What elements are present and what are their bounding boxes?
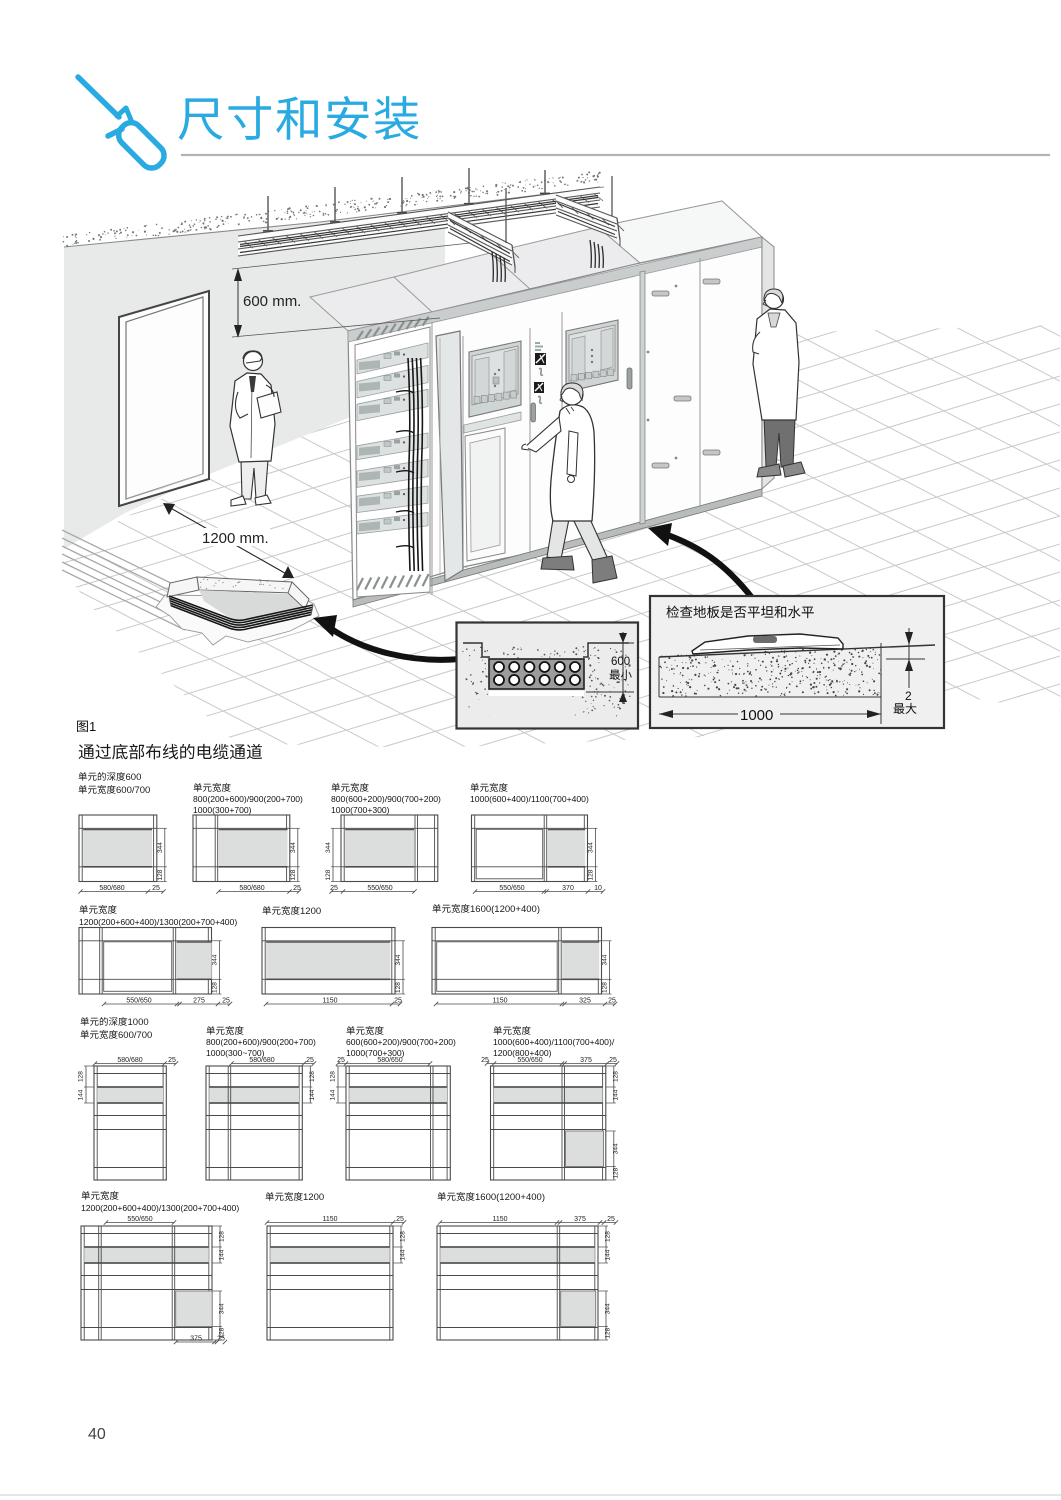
svg-text:1600(1200+400): 1600(1200+400)	[470, 904, 540, 915]
svg-text:128: 128	[588, 869, 595, 880]
svg-text:144: 144	[330, 1089, 337, 1100]
svg-text:375: 375	[574, 1216, 586, 1223]
svg-text:344: 344	[290, 842, 297, 853]
svg-text:1150: 1150	[492, 998, 507, 1005]
svg-text:1200: 1200	[300, 906, 321, 917]
svg-text:128: 128	[612, 1167, 619, 1178]
svg-text:1000: 1000	[740, 707, 773, 724]
svg-text:1000: 1000	[128, 1017, 149, 1028]
svg-text:580/680: 580/680	[239, 885, 264, 892]
svg-text:25: 25	[609, 1057, 617, 1064]
svg-text:144: 144	[309, 1089, 316, 1100]
svg-text:128: 128	[330, 1071, 337, 1082]
svg-text:344: 344	[219, 1303, 226, 1314]
svg-text:128: 128	[612, 1071, 619, 1082]
svg-text:144: 144	[78, 1089, 85, 1100]
svg-text:1000(700+300): 1000(700+300)	[331, 805, 390, 815]
svg-text:375: 375	[190, 1336, 202, 1343]
svg-text:25: 25	[152, 885, 160, 892]
svg-text:370: 370	[562, 885, 574, 892]
svg-text:375: 375	[580, 1057, 592, 1064]
svg-text:25: 25	[222, 998, 230, 1005]
svg-text:25: 25	[168, 1057, 176, 1064]
svg-text:10: 10	[594, 885, 602, 892]
svg-text:25: 25	[396, 1216, 404, 1223]
svg-text:600/700: 600/700	[118, 1030, 152, 1041]
svg-text:128: 128	[78, 1071, 85, 1082]
svg-text:344: 344	[395, 954, 402, 965]
svg-text:25: 25	[306, 1057, 314, 1064]
svg-text:275: 275	[193, 998, 205, 1005]
svg-text:1600(1200+400): 1600(1200+400)	[475, 1192, 545, 1203]
svg-text:580/650: 580/650	[377, 1057, 402, 1064]
svg-text:600/700: 600/700	[116, 785, 150, 796]
svg-text:144: 144	[605, 1249, 612, 1260]
svg-text:600(600+200)/900(700+200): 600(600+200)/900(700+200)	[346, 1037, 456, 1047]
svg-text:1150: 1150	[322, 998, 337, 1005]
svg-text:550/650: 550/650	[367, 885, 392, 892]
svg-text:1150: 1150	[322, 1216, 337, 1223]
svg-text:344: 344	[588, 842, 595, 853]
svg-text:344: 344	[612, 1143, 619, 1154]
svg-text:25: 25	[607, 1216, 615, 1223]
svg-text:25: 25	[217, 1336, 225, 1343]
svg-text:128: 128	[309, 1071, 316, 1082]
svg-text:1000(300+700): 1000(300+700)	[193, 805, 252, 815]
svg-text:1200(200+600+400)/1300(200+700: 1200(200+600+400)/1300(200+700+400)	[81, 1203, 239, 1213]
svg-text:128: 128	[325, 869, 332, 880]
svg-text:550/650: 550/650	[517, 1057, 542, 1064]
svg-text:2: 2	[905, 689, 912, 703]
svg-text:128: 128	[157, 869, 164, 880]
svg-text:550/650: 550/650	[127, 1216, 152, 1223]
svg-text:25: 25	[608, 998, 616, 1005]
svg-text:600: 600	[611, 656, 630, 668]
svg-text:128: 128	[395, 982, 402, 993]
svg-text:550/650: 550/650	[499, 885, 524, 892]
svg-text:580/680: 580/680	[117, 1057, 142, 1064]
svg-text:1: 1	[89, 719, 96, 734]
svg-text:40: 40	[88, 1426, 106, 1443]
svg-text:600: 600	[126, 772, 142, 783]
svg-text:344: 344	[325, 842, 332, 853]
svg-text:128: 128	[602, 982, 609, 993]
svg-text:1200 mm.: 1200 mm.	[202, 530, 269, 547]
svg-text:25: 25	[330, 885, 338, 892]
svg-text:1200: 1200	[303, 1192, 324, 1203]
svg-text:128: 128	[605, 1231, 612, 1242]
svg-text:550/650: 550/650	[126, 998, 151, 1005]
svg-text:580/680: 580/680	[249, 1057, 274, 1064]
svg-text:800(200+600)/900(200+700): 800(200+600)/900(200+700)	[206, 1037, 316, 1047]
svg-text:344: 344	[605, 1303, 612, 1314]
svg-text:128: 128	[605, 1327, 612, 1338]
svg-text:128: 128	[219, 1231, 226, 1242]
svg-text:344: 344	[602, 954, 609, 965]
svg-text:344: 344	[157, 842, 164, 853]
svg-text:144: 144	[400, 1249, 407, 1260]
svg-text:1200(200+600+400)/1300(200+700: 1200(200+600+400)/1300(200+700+400)	[79, 917, 237, 927]
svg-text:1150: 1150	[492, 1216, 507, 1223]
svg-text:800(200+600)/900(200+700): 800(200+600)/900(200+700)	[193, 794, 303, 804]
svg-text:800(600+200)/900(700+200): 800(600+200)/900(700+200)	[331, 794, 441, 804]
svg-text:128: 128	[290, 869, 297, 880]
svg-text:600 mm.: 600 mm.	[243, 293, 301, 310]
svg-text:128: 128	[400, 1231, 407, 1242]
svg-text:580/680: 580/680	[99, 885, 124, 892]
svg-text:144: 144	[219, 1249, 226, 1260]
svg-text:1000(600+400)/1100(700+400)/: 1000(600+400)/1100(700+400)/	[493, 1037, 615, 1047]
svg-text:128: 128	[212, 982, 219, 993]
svg-text:1000(600+400)/1100(700+400): 1000(600+400)/1100(700+400)	[470, 794, 589, 804]
svg-text:325: 325	[579, 998, 591, 1005]
svg-text:144: 144	[612, 1089, 619, 1100]
svg-text:344: 344	[212, 954, 219, 965]
